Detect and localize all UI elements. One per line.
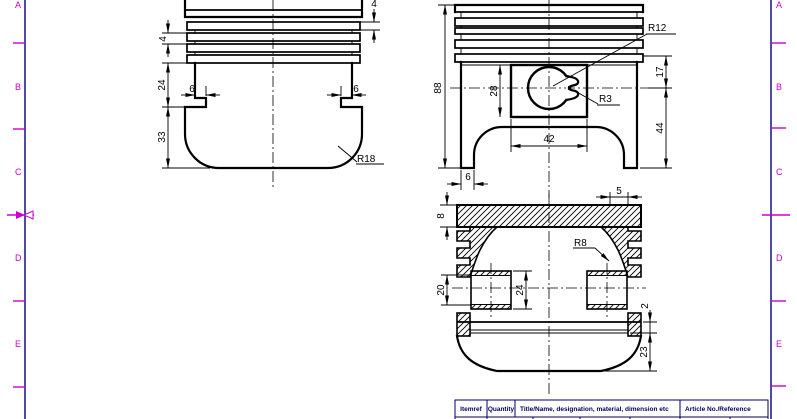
- dim-crown-thickness: 8: [436, 213, 447, 219]
- dim-foot-width: 6: [465, 172, 471, 183]
- dim-boss-height: 28: [489, 85, 500, 97]
- zone-letter-left-a: A: [15, 0, 21, 10]
- dim-top-to-pin: 17: [655, 66, 666, 78]
- dim-front-relief-right: 6: [353, 84, 359, 95]
- zone-letter-right-b: B: [776, 82, 782, 92]
- title-block-itemref: Itemref: [460, 406, 483, 413]
- dim-front-relief-left: 6: [189, 84, 195, 95]
- dim-front-land: 4: [158, 36, 169, 42]
- radius-label-pin-hole: R12: [648, 23, 667, 34]
- title-block-title: Title/Name, designation, material, dimen…: [520, 406, 669, 413]
- sheet-background: [0, 0, 797, 419]
- drawing-canvas[interactable]: A B C D E A B C D E 4 24: [0, 0, 797, 419]
- zone-letter-right-a: A: [776, 0, 782, 10]
- dim-ring-land: 2: [640, 303, 651, 309]
- zone-letter-left-b: B: [15, 82, 21, 92]
- zone-letter-left-c: C: [15, 167, 22, 177]
- radius-label-inner-fillet: R8: [574, 238, 587, 249]
- zone-letter-right-e: E: [776, 339, 782, 349]
- dim-front-ring-belt: 24: [157, 79, 168, 91]
- radius-label-notch: R3: [599, 94, 612, 105]
- zone-letter-right-c: C: [776, 167, 783, 177]
- dim-side-height: 88: [433, 82, 444, 94]
- dim-top-land: 5: [616, 186, 622, 197]
- radius-label-skirt-fillet: R18: [357, 154, 376, 165]
- dim-boss-width: 42: [543, 134, 555, 145]
- title-block-article: Article No./Reference: [685, 406, 751, 413]
- drawing-sheet: A B C D E A B C D E 4 24: [0, 0, 797, 419]
- zone-letter-left-e: E: [15, 339, 21, 349]
- dim-boss-width-bottom: 24: [515, 284, 526, 296]
- dim-pin-to-bottom: 44: [655, 122, 666, 134]
- dim-front-skirt: 33: [157, 131, 168, 143]
- zone-letter-left-d: D: [15, 253, 22, 263]
- title-block-quantity: Quantity: [488, 406, 515, 413]
- dim-front-land-top: 4: [371, 0, 377, 10]
- dim-skirt-height: 23: [639, 346, 650, 358]
- dim-pin-bore: 20: [436, 284, 447, 296]
- zone-letter-right-d: D: [776, 253, 783, 263]
